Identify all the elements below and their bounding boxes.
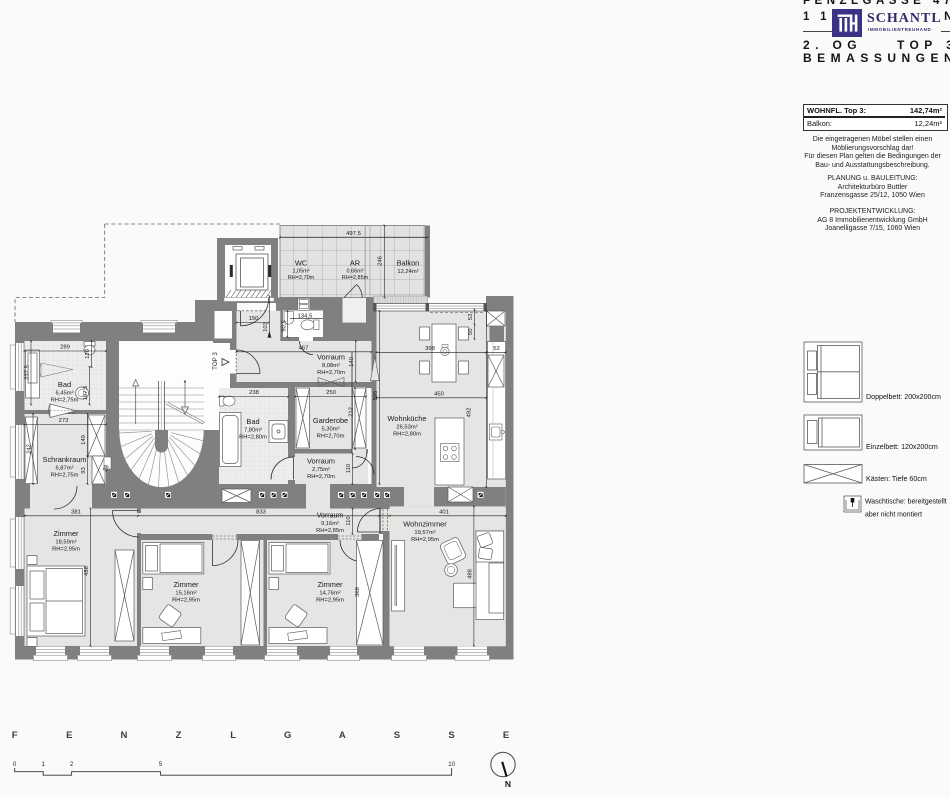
svg-text:RH=2,95m: RH=2,95m [172, 597, 200, 603]
svg-text:595: 595 [373, 390, 379, 401]
svg-text:52: 52 [493, 346, 500, 352]
svg-text:6,45m²: 6,45m² [55, 391, 73, 397]
svg-text:26,53m²: 26,53m² [396, 425, 417, 431]
svg-text:467: 467 [299, 345, 309, 351]
svg-text:488: 488 [467, 568, 473, 579]
svg-text:Zimmer: Zimmer [173, 580, 199, 589]
svg-text:A: A [339, 730, 346, 741]
svg-text:8,08m²: 8,08m² [322, 363, 340, 369]
svg-text:368: 368 [355, 586, 361, 597]
svg-text:0: 0 [13, 762, 17, 768]
svg-text:2: 2 [70, 762, 74, 768]
svg-text:Garderobe: Garderobe [313, 416, 348, 425]
svg-text:Bad: Bad [58, 380, 71, 389]
svg-text:150: 150 [249, 316, 260, 322]
svg-text:RH=2,95m: RH=2,95m [316, 597, 344, 603]
svg-text:2,75m²: 2,75m² [312, 467, 330, 473]
svg-text:RH=2,70m: RH=2,70m [317, 433, 345, 439]
svg-text:237.5: 237.5 [25, 364, 31, 379]
svg-text:289: 289 [60, 345, 70, 351]
svg-text:212: 212 [348, 407, 354, 417]
svg-text:E: E [503, 730, 509, 741]
svg-text:Waschtische: bereitgestellt: Waschtische: bereitgestellt [865, 499, 947, 506]
svg-text:9,16m²: 9,16m² [321, 521, 339, 527]
svg-text:130: 130 [85, 348, 91, 359]
svg-text:246: 246 [378, 255, 384, 266]
svg-text:1,05m²: 1,05m² [292, 269, 309, 275]
svg-text:RH=2,70m: RH=2,70m [288, 275, 315, 281]
svg-text:450: 450 [434, 391, 445, 397]
svg-text:250: 250 [326, 390, 337, 396]
svg-text:110: 110 [346, 516, 352, 526]
svg-text:Wohnzimmer: Wohnzimmer [403, 520, 447, 529]
svg-text:398: 398 [425, 346, 436, 352]
svg-text:Kästen: Tiefe 60cm: Kästen: Tiefe 60cm [866, 475, 927, 483]
svg-text:53: 53 [468, 313, 474, 320]
svg-text:5,30m²: 5,30m² [321, 427, 339, 433]
svg-text:RH=2,75m: RH=2,75m [51, 397, 79, 403]
svg-text:Balkon: Balkon [397, 259, 420, 268]
svg-text:488: 488 [84, 565, 90, 576]
svg-text:S: S [394, 730, 400, 741]
svg-text:RH=2,95m: RH=2,95m [411, 537, 439, 543]
svg-text:12,24m²: 12,24m² [397, 269, 418, 275]
svg-text:Vorraum: Vorraum [307, 457, 335, 466]
svg-text:242: 242 [27, 444, 33, 454]
svg-text:E: E [66, 730, 72, 741]
svg-text:Einzelbett: 120x200cm: Einzelbett: 120x200cm [866, 443, 938, 451]
svg-text:134,5: 134,5 [298, 314, 313, 320]
svg-text:TOP 3: TOP 3 [212, 352, 219, 370]
svg-text:L: L [230, 730, 236, 741]
svg-text:140: 140 [349, 356, 355, 367]
svg-text:Zimmer: Zimmer [317, 580, 343, 589]
svg-text:Doppelbett: 200x200cm: Doppelbett: 200x200cm [866, 393, 941, 401]
svg-text:103: 103 [263, 321, 269, 332]
svg-text:1: 1 [42, 762, 46, 768]
svg-text:RH=2,95m: RH=2,95m [52, 546, 80, 552]
svg-text:10: 10 [448, 762, 455, 768]
svg-text:50: 50 [468, 328, 474, 335]
svg-text:492: 492 [467, 408, 473, 418]
svg-text:WC: WC [295, 259, 308, 268]
svg-text:RH=2,70m: RH=2,70m [317, 370, 345, 376]
svg-text:Vorraum: Vorraum [317, 513, 344, 520]
svg-text:273: 273 [59, 418, 70, 424]
svg-text:7,80m²: 7,80m² [244, 428, 262, 434]
svg-text:Wohnküche: Wohnküche [388, 414, 427, 423]
svg-text:149: 149 [81, 435, 87, 445]
svg-text:G: G [284, 730, 291, 741]
svg-text:Vorraum: Vorraum [317, 353, 345, 362]
svg-text:381: 381 [71, 509, 81, 515]
svg-text:F: F [12, 730, 18, 741]
svg-text:6,87m²: 6,87m² [55, 466, 73, 472]
svg-text:RH=2,85m: RH=2,85m [316, 528, 344, 534]
svg-text:Z: Z [176, 730, 182, 741]
svg-text:0,66m²: 0,66m² [346, 269, 363, 275]
svg-text:497.5: 497.5 [346, 231, 361, 237]
svg-text:238: 238 [249, 390, 260, 396]
svg-text:18,59m²: 18,59m² [55, 540, 76, 546]
svg-text:Schrankraum: Schrankraum [43, 455, 87, 464]
svg-text:15,16m²: 15,16m² [175, 591, 196, 597]
svg-text:RH=2,85m: RH=2,85m [342, 275, 369, 281]
svg-text:19,57m²: 19,57m² [414, 530, 435, 536]
svg-text:5: 5 [159, 762, 163, 768]
svg-text:N: N [505, 779, 511, 789]
svg-text:14,76m²: 14,76m² [319, 591, 340, 597]
svg-text:833: 833 [256, 509, 267, 515]
svg-text:RH=2,80m: RH=2,80m [239, 434, 267, 440]
svg-text:93: 93 [81, 467, 87, 474]
svg-text:aber nicht montiert: aber nicht montiert [865, 512, 922, 519]
svg-text:N: N [120, 730, 127, 741]
svg-text:RH=2,75m: RH=2,75m [51, 472, 79, 478]
svg-text:RH=2,80m: RH=2,80m [393, 431, 421, 437]
svg-text:401: 401 [439, 509, 449, 515]
svg-text:AR: AR [350, 259, 360, 268]
svg-text:90,5: 90,5 [282, 320, 288, 332]
svg-text:Zimmer: Zimmer [53, 529, 79, 538]
svg-text:Bad: Bad [246, 417, 259, 426]
svg-text:S: S [448, 730, 454, 741]
svg-text:110: 110 [346, 463, 352, 473]
svg-text:107.5: 107.5 [83, 385, 89, 400]
svg-text:RH=2,70m: RH=2,70m [307, 474, 335, 480]
